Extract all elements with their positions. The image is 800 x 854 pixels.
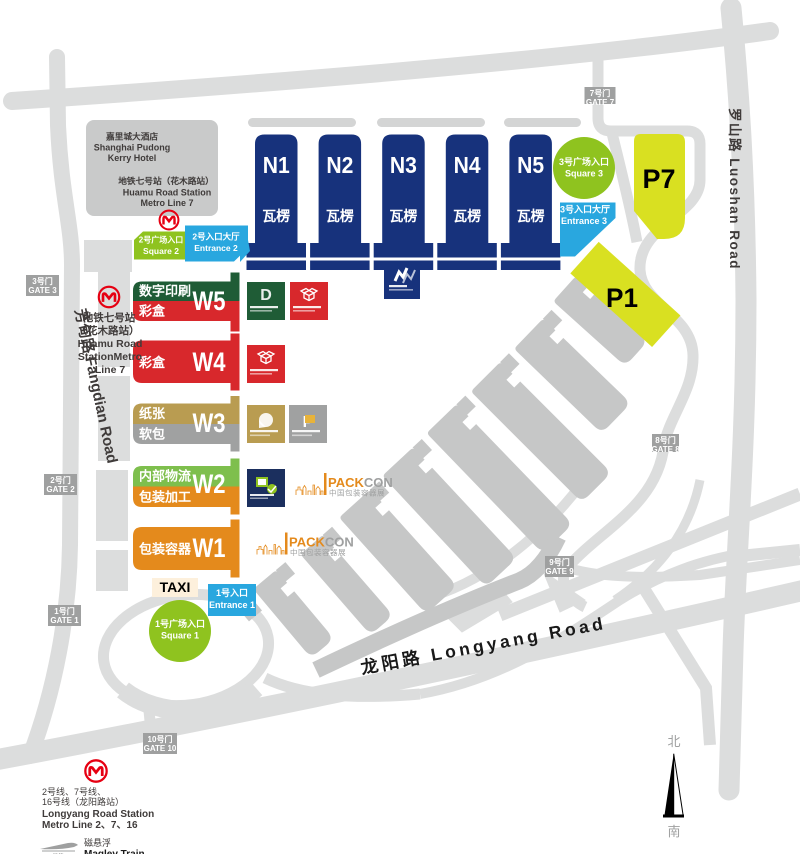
svg-text:3号门: 3号门	[32, 276, 52, 286]
svg-text:瓦楞: 瓦楞	[453, 208, 481, 224]
svg-text:N4: N4	[454, 152, 481, 178]
svg-text:2号入口大厅: 2号入口大厅	[192, 232, 240, 242]
svg-text:软包: 软包	[139, 427, 165, 442]
svg-text:N2: N2	[326, 152, 353, 178]
svg-text:W3: W3	[193, 408, 226, 438]
svg-text:磁悬浮: 磁悬浮	[84, 837, 111, 848]
svg-text:3号广场入口: 3号广场入口	[559, 156, 609, 167]
svg-text:GATE 3: GATE 3	[28, 286, 57, 295]
svg-text:中国包装容器展: 中国包装容器展	[329, 488, 385, 498]
svg-text:10号门: 10号门	[148, 734, 173, 744]
svg-text:GATE 9: GATE 9	[545, 567, 574, 576]
svg-text:嘉里城大酒店: 嘉里城大酒店	[105, 131, 158, 142]
svg-text:9号门: 9号门	[549, 557, 569, 567]
svg-text:南: 南	[667, 824, 680, 839]
svg-text:Metro Line 7: Metro Line 7	[140, 198, 193, 208]
svg-text:GATE 7: GATE 7	[586, 98, 615, 107]
svg-text:Entrance 1: Entrance 1	[209, 600, 255, 610]
svg-text:D: D	[260, 287, 272, 304]
svg-text:Shanghai Pudong: Shanghai Pudong	[94, 143, 171, 153]
svg-text:彩盒: 彩盒	[138, 304, 166, 319]
svg-text:Longyang Road Station: Longyang Road Station	[42, 809, 154, 820]
svg-text:GATE 10: GATE 10	[144, 744, 177, 753]
svg-text:内部物流: 内部物流	[139, 469, 191, 484]
svg-text:Entrance 3: Entrance 3	[561, 216, 607, 226]
svg-text:瓦楞: 瓦楞	[389, 208, 417, 224]
svg-text:GATE 2: GATE 2	[46, 485, 75, 494]
svg-text:16号线（龙阳路站）: 16号线（龙阳路站）	[42, 796, 124, 807]
svg-text:Maglev Train: Maglev Train	[84, 849, 145, 854]
svg-text:罗山路 Luoshan Road: 罗山路 Luoshan Road	[727, 108, 743, 270]
svg-text:2号广场入口: 2号广场入口	[139, 235, 183, 245]
svg-text:包装容器: 包装容器	[139, 542, 192, 557]
svg-text:Huamu Road Station: Huamu Road Station	[123, 188, 212, 198]
svg-text:地铁七号站（花木路站）: 地铁七号站（花木路站）	[118, 175, 214, 186]
svg-text:N3: N3	[390, 152, 417, 178]
svg-text:瓦楞: 瓦楞	[326, 208, 354, 224]
svg-text:GATE 1: GATE 1	[50, 616, 79, 625]
svg-text:彩盒: 彩盒	[138, 355, 166, 370]
svg-text:包装加工: 包装加工	[139, 490, 191, 505]
svg-text:P7: P7	[643, 164, 676, 194]
svg-text:N5: N5	[517, 152, 544, 178]
svg-text:1号入口: 1号入口	[216, 588, 248, 598]
svg-text:8号门: 8号门	[655, 435, 675, 445]
svg-text:北: 北	[667, 734, 680, 749]
svg-text:Entrance 2: Entrance 2	[194, 243, 238, 253]
svg-text:2号门: 2号门	[50, 475, 70, 485]
svg-text:2号线、7号线、: 2号线、7号线、	[42, 786, 106, 797]
svg-text:纸张: 纸张	[139, 406, 166, 421]
svg-text:Kerry Hotel: Kerry Hotel	[108, 153, 157, 163]
svg-text:TAXI: TAXI	[160, 579, 191, 595]
svg-text:Square 1: Square 1	[161, 631, 199, 641]
svg-text:W4: W4	[193, 347, 226, 377]
svg-text:Metro Line 2、7、16: Metro Line 2、7、16	[42, 820, 138, 831]
svg-text:Square 2: Square 2	[143, 246, 179, 256]
svg-text:3号入口大厅: 3号入口大厅	[560, 204, 610, 215]
svg-text:GATE 8: GATE 8	[651, 445, 680, 454]
svg-text:W1: W1	[193, 533, 226, 563]
svg-text:中国包装容器展: 中国包装容器展	[290, 547, 346, 557]
svg-text:W5: W5	[193, 286, 226, 316]
svg-text:W2: W2	[193, 469, 226, 499]
svg-text:1号广场入口: 1号广场入口	[155, 618, 205, 629]
svg-text:7号门: 7号门	[590, 88, 610, 98]
svg-text:数字印刷: 数字印刷	[139, 284, 191, 299]
svg-text:瓦楞: 瓦楞	[262, 208, 290, 224]
svg-text:瓦楞: 瓦楞	[517, 208, 545, 224]
svg-text:P1: P1	[606, 283, 638, 313]
svg-text:1号门: 1号门	[54, 606, 74, 616]
svg-text:N1: N1	[263, 152, 290, 178]
svg-text:Square 3: Square 3	[565, 169, 603, 179]
